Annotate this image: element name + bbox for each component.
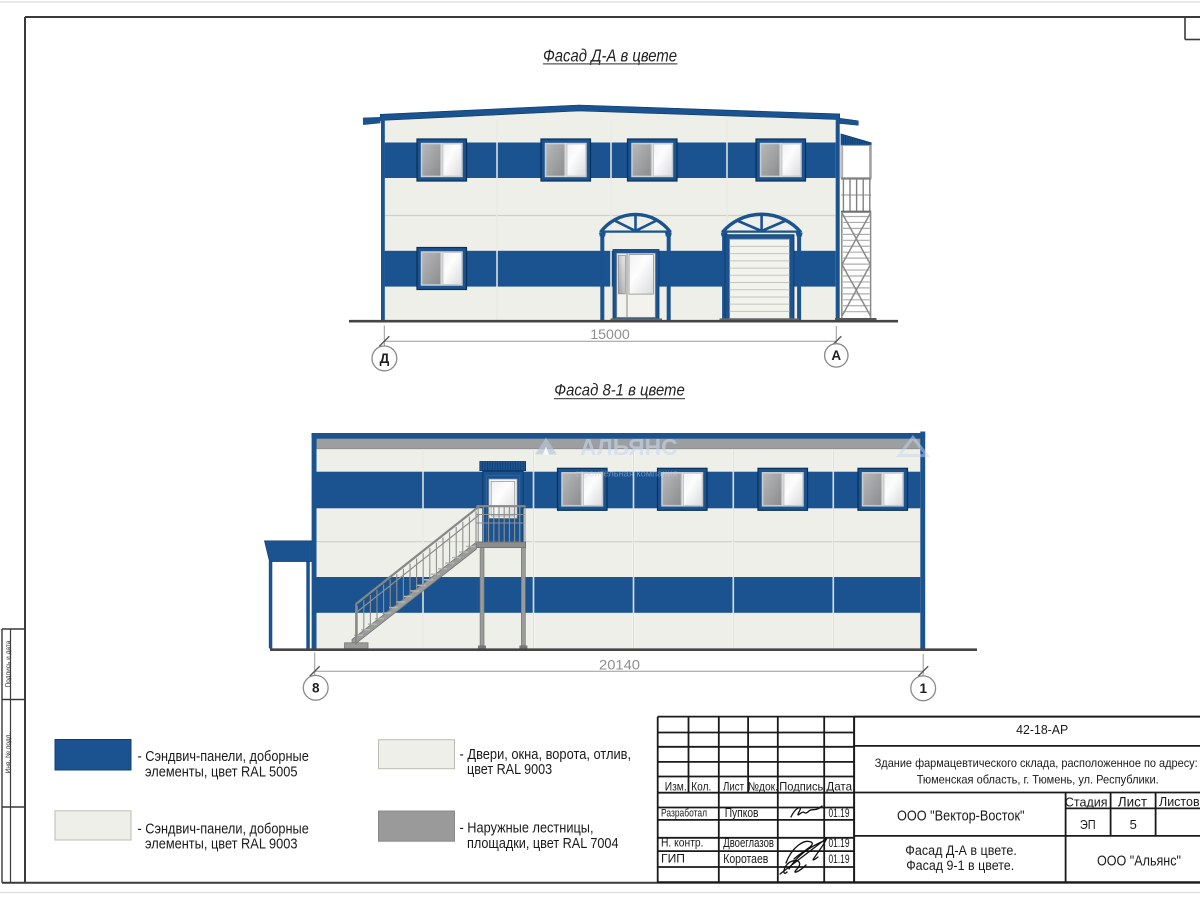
- svg-text:Д: Д: [380, 351, 390, 366]
- svg-text:01.19: 01.19: [829, 852, 850, 866]
- svg-text:Разработал: Разработал: [661, 807, 707, 819]
- svg-text:Подпись и дата: Подпись и дата: [5, 640, 12, 687]
- svg-text:цвет RAL 9003: цвет RAL 9003: [467, 761, 552, 778]
- svg-text:АЛЬЯНС: АЛЬЯНС: [580, 434, 678, 460]
- svg-text:Кол.: Кол.: [691, 779, 711, 793]
- svg-text:ГИП: ГИП: [661, 853, 685, 865]
- svg-text:элементы, цвет RAL 9003: элементы, цвет RAL 9003: [145, 836, 298, 853]
- svg-text:Лист: Лист: [1118, 795, 1147, 810]
- svg-text:Стадия: Стадия: [1065, 796, 1108, 810]
- svg-text:ООО "Вектор-Восток": ООО "Вектор-Восток": [897, 808, 1025, 825]
- svg-text:Пупков: Пупков: [725, 805, 759, 820]
- svg-text:Фасад 9-1 в цвете.: Фасад 9-1 в цвете.: [906, 858, 1014, 873]
- svg-text:15000: 15000: [590, 327, 630, 342]
- svg-text:строительная компания: строительная компания: [575, 468, 678, 478]
- svg-text:площадки, цвет RAL 7004: площадки, цвет RAL 7004: [467, 835, 619, 852]
- svg-text:Изм.: Изм.: [665, 779, 687, 793]
- svg-text:Лист: Лист: [723, 779, 744, 793]
- svg-text:1: 1: [919, 681, 927, 696]
- svg-text:20140: 20140: [599, 658, 640, 673]
- svg-text:8: 8: [312, 681, 320, 696]
- svg-text:Дата: Дата: [826, 779, 852, 793]
- svg-text:Н. контр.: Н. контр.: [661, 838, 704, 850]
- svg-text:Здание фармацевтического склад: Здание фармацевтического склада, располо…: [875, 756, 1198, 770]
- svg-text:01.19: 01.19: [829, 836, 850, 850]
- svg-text:Подпись: Подпись: [779, 779, 823, 793]
- svg-text:элементы, цвет RAL 5005: элементы, цвет RAL 5005: [145, 763, 298, 780]
- svg-text:42-18-АР: 42-18-АР: [1016, 722, 1068, 737]
- svg-text:Тюменская область, г. Тюмень,: Тюменская область, г. Тюмень, ул. Респуб…: [917, 773, 1159, 787]
- svg-text:Листов: Листов: [1159, 795, 1200, 809]
- svg-text:Двоеглазов: Двоеглазов: [723, 835, 774, 850]
- svg-text:ЭП: ЭП: [1080, 817, 1096, 832]
- svg-text:А: А: [831, 348, 841, 363]
- svg-text:Фасад Д-А в цвете: Фасад Д-А в цвете: [543, 46, 677, 66]
- svg-text:№док.: №док.: [748, 779, 778, 793]
- svg-text:Фасад 8-1 в цвете: Фасад 8-1 в цвете: [554, 381, 685, 400]
- svg-text:5: 5: [1130, 817, 1137, 832]
- svg-text:ООО "Альянс": ООО "Альянс": [1097, 853, 1181, 870]
- svg-text:Коротаев: Коротаев: [723, 851, 768, 866]
- svg-text:01.19: 01.19: [829, 806, 850, 820]
- svg-text:Фасад Д-А в цвете.: Фасад Д-А в цвете.: [905, 843, 1017, 858]
- svg-text:Инв. № подл.: Инв. № подл.: [5, 733, 12, 774]
